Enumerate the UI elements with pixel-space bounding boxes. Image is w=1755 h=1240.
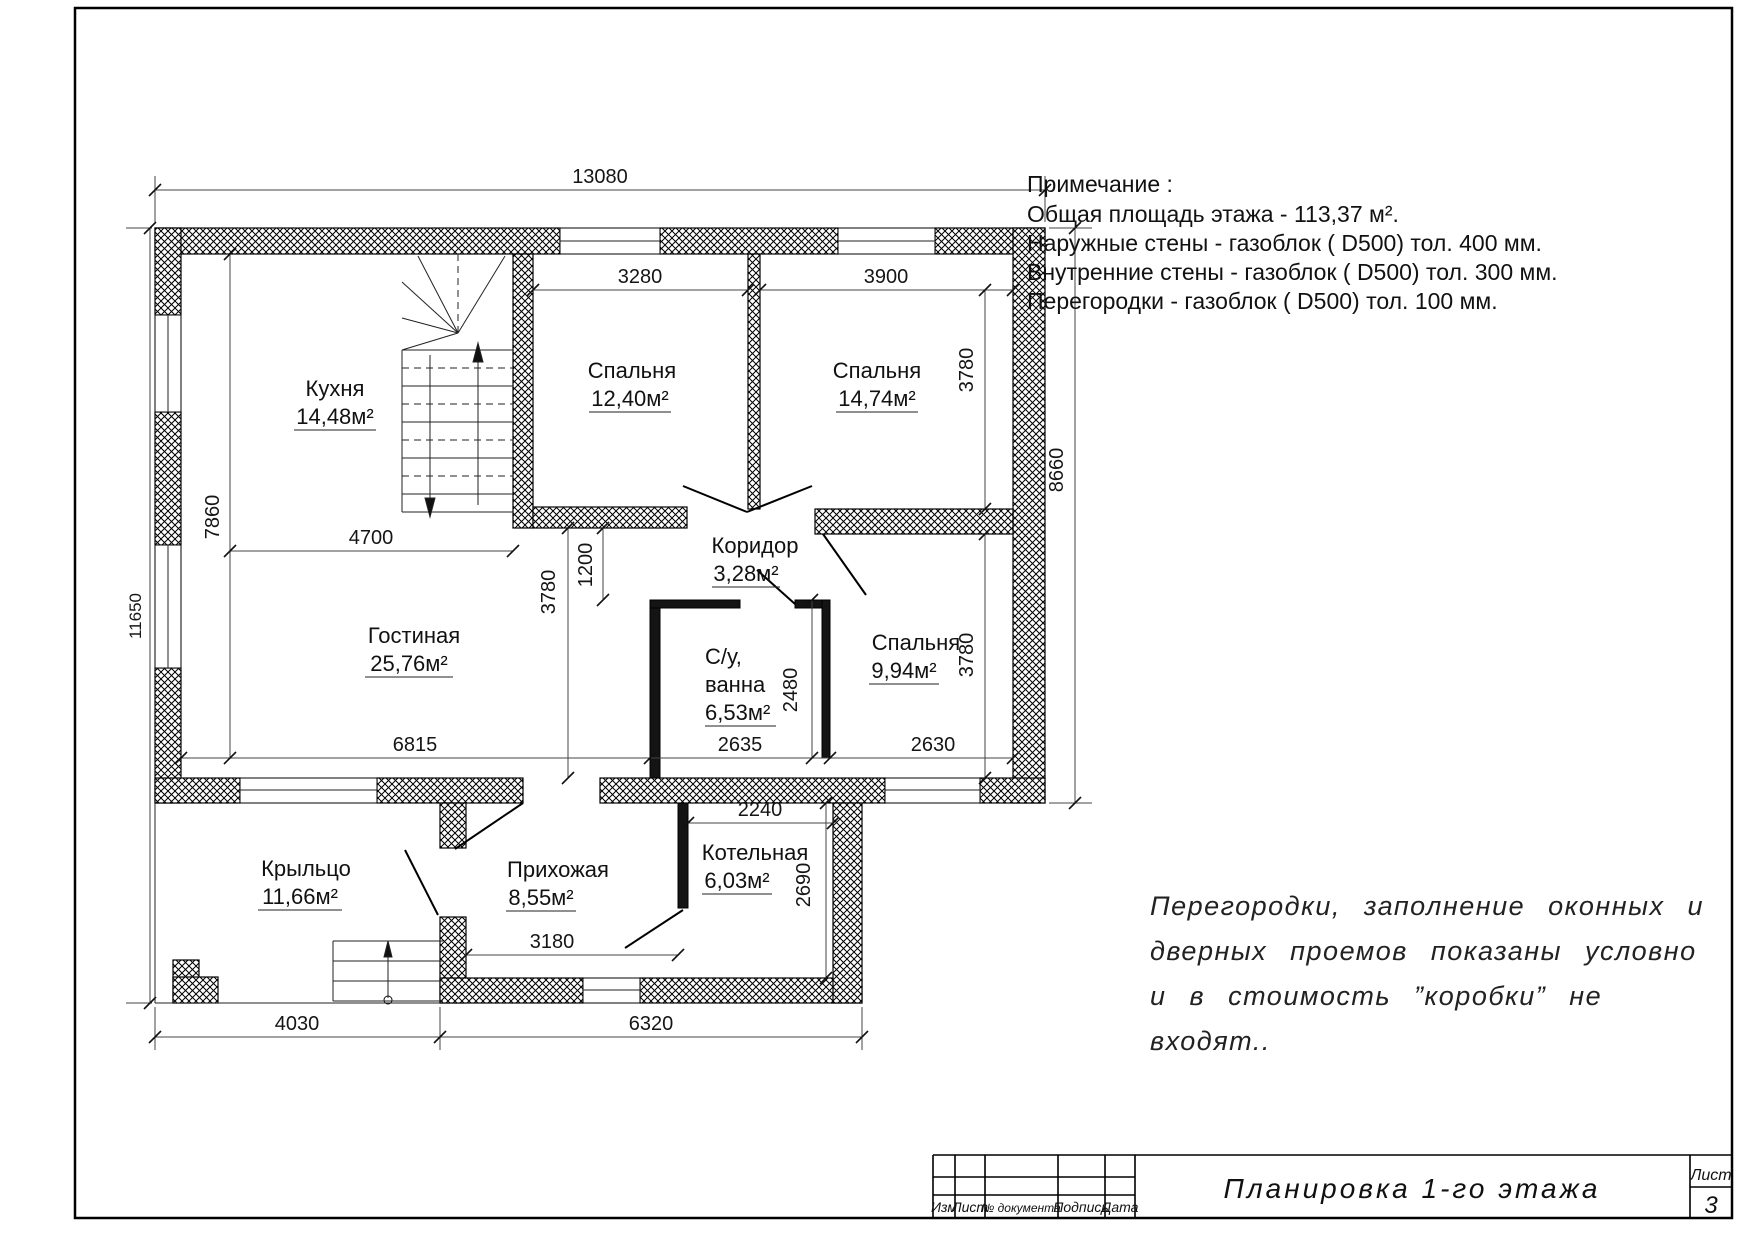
room-porch-area: 11,66м² xyxy=(262,884,338,909)
dim-ext-width: 6320 xyxy=(629,1013,674,1035)
titleblock-col-doc: № документа xyxy=(981,1201,1061,1215)
dim-bed1-width: 3280 xyxy=(618,266,663,288)
room-corridor-name: Коридор xyxy=(712,533,799,558)
notes-line-4: Перегородки - газоблок ( D500) тол. 100 … xyxy=(1027,288,1498,314)
notes-line-2: Наружные стены - газоблок ( D500) тол. 4… xyxy=(1027,230,1542,256)
room-kitchen-area: 14,48м² xyxy=(296,404,374,429)
dim-porch-width: 4030 xyxy=(275,1013,320,1035)
titleblock-sheet-number: 3 xyxy=(1704,1192,1718,1219)
dim-bed2-height: 3780 xyxy=(956,348,978,393)
dim-top-overall: 13080 xyxy=(572,166,628,188)
titleblock-title: Планировка 1-го этажа xyxy=(1224,1173,1601,1204)
titleblock-col-date: Дата xyxy=(1100,1199,1139,1215)
room-bed3-area: 9,94м² xyxy=(871,658,936,683)
dim-boiler-height: 2690 xyxy=(793,863,815,908)
drawing-sheet: 13080 3280 3900 4700 6815 2635 2630 2240… xyxy=(0,0,1755,1240)
notes-heading: Примечание : xyxy=(1027,171,1173,197)
stairs xyxy=(402,254,513,517)
room-kitchen-name: Кухня xyxy=(306,376,365,401)
room-bath-name: С/у, xyxy=(705,644,742,669)
disclaimer-line-2: дверных проемов показаны условно xyxy=(1150,936,1697,966)
dim-hall-width: 3180 xyxy=(530,931,575,953)
room-living-name: Гостиная xyxy=(368,623,460,648)
dim-left-overall: 11650 xyxy=(126,593,145,639)
disclaimer-line-3: и в стоимость ”коробки” не xyxy=(1150,981,1602,1011)
titleblock-col-sign: Подпись xyxy=(1053,1199,1109,1215)
title-block: Изм Лист № документа Подпись Дата Планир… xyxy=(931,1155,1732,1219)
dim-bed2-width: 3900 xyxy=(864,266,909,288)
disclaimer-block: Перегородки, заполнение оконных и дверны… xyxy=(1150,891,1704,1056)
dim-right-overall: 8660 xyxy=(1046,448,1068,493)
room-hall-area: 8,55м² xyxy=(508,885,573,910)
disclaimer-line-4: входят.. xyxy=(1150,1026,1271,1056)
dim-bath-width: 2635 xyxy=(718,734,763,756)
room-bed2-name: Спальня xyxy=(833,358,921,383)
notes-line-3: Внутренние стены - газоблок ( D500) тол.… xyxy=(1027,259,1558,285)
dim-living-height: 3780 xyxy=(538,570,560,615)
room-bath-name2: ванна xyxy=(705,672,766,697)
floor-plan-svg: 13080 3280 3900 4700 6815 2635 2630 2240… xyxy=(0,0,1755,1240)
dim-kitchen-height: 7860 xyxy=(202,495,224,540)
dim-kitchen-width: 4700 xyxy=(349,527,394,549)
dim-bed3-width: 2630 xyxy=(911,734,956,756)
room-living-area: 25,76м² xyxy=(370,651,448,676)
dim-corridor-width: 1200 xyxy=(575,543,597,588)
dimension-ticks xyxy=(144,184,1081,1043)
room-hall-name: Прихожая xyxy=(507,857,609,882)
room-porch-name: Крыльцо xyxy=(261,856,351,881)
disclaimer-line-1: Перегородки, заполнение оконных и xyxy=(1150,891,1704,921)
porch-steps xyxy=(333,941,443,1004)
room-bed1-area: 12,40м² xyxy=(591,386,669,411)
dim-bath-height: 2480 xyxy=(780,668,802,713)
dimension-lines xyxy=(126,176,1092,1050)
room-bath-area: 6,53м² xyxy=(705,700,770,725)
room-boiler-area: 6,03м² xyxy=(704,868,769,893)
room-bed1-name: Спальня xyxy=(588,358,676,383)
room-bed2-area: 14,74м² xyxy=(838,386,916,411)
notes-line-1: Общая площадь этажа - 113,37 м². xyxy=(1027,201,1399,227)
room-bed3-name: Спальня xyxy=(872,630,960,655)
room-boiler-name: Котельная xyxy=(702,840,809,865)
notes-block: Примечание : Общая площадь этажа - 113,3… xyxy=(1027,171,1558,314)
room-corridor-area: 3,28м² xyxy=(713,561,778,586)
titleblock-sheet-label: Лист xyxy=(1689,1167,1731,1184)
dim-living-width: 6815 xyxy=(393,734,438,756)
dim-boiler-width: 2240 xyxy=(738,799,783,821)
